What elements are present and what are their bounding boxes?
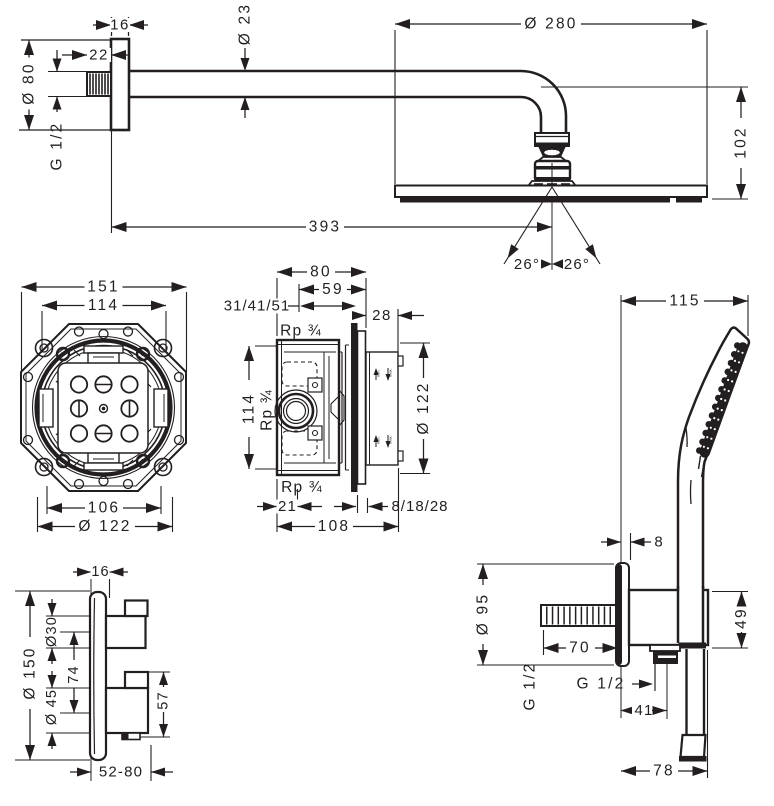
svg-text:28: 28 [372,307,392,324]
svg-text:393: 393 [309,219,341,236]
svg-text:108: 108 [318,518,350,535]
svg-text:Ø 280: Ø 280 [524,16,577,33]
svg-text:74: 74 [66,665,82,684]
svg-text:59: 59 [322,281,344,298]
svg-text:31/41/51: 31/41/51 [224,298,290,315]
svg-text:22: 22 [89,47,109,64]
svg-text:Ø 122: Ø 122 [78,518,131,535]
svg-text:102: 102 [733,126,750,158]
svg-text:Rp ¾: Rp ¾ [281,479,323,496]
svg-text:26°: 26° [564,256,590,273]
svg-text:Ø 23: Ø 23 [237,3,254,45]
svg-text:16: 16 [110,17,130,34]
svg-text:Rp ¾: Rp ¾ [280,323,322,340]
svg-text:Ø 45: Ø 45 [44,689,60,725]
svg-text:16: 16 [91,564,109,580]
svg-text:80: 80 [310,264,332,281]
svg-text:41: 41 [634,702,653,719]
svg-text:G 1/2: G 1/2 [49,122,66,171]
svg-text:151: 151 [87,279,119,296]
svg-text:49: 49 [733,607,750,629]
svg-text:max.: max. [388,435,393,444]
svg-text:G 1/2: G 1/2 [522,662,539,711]
svg-text:Rp ¾: Rp ¾ [259,389,276,431]
svg-text:21: 21 [278,498,297,515]
svg-text:52-80: 52-80 [99,764,143,781]
svg-text:min.: min. [376,369,381,377]
svg-text:Ø30: Ø30 [44,616,60,647]
svg-text:Ø 122: Ø 122 [415,381,432,434]
svg-text:Ø 150: Ø 150 [22,646,39,699]
svg-text:115: 115 [669,293,700,310]
svg-text:8: 8 [654,534,663,551]
svg-text:Ø 80: Ø 80 [21,62,38,104]
svg-text:max.: max. [388,368,393,377]
svg-text:114: 114 [88,297,119,314]
svg-text:min.: min. [376,436,381,444]
svg-text:8/18/28: 8/18/28 [391,498,448,515]
svg-text:114: 114 [241,393,258,424]
svg-text:70: 70 [569,640,591,657]
svg-text:106: 106 [88,500,120,517]
svg-text:78: 78 [653,763,675,780]
svg-text:26°: 26° [514,256,540,273]
svg-text:Ø 95: Ø 95 [475,593,492,635]
svg-text:G 1/2: G 1/2 [577,676,626,693]
svg-text:57: 57 [156,691,172,710]
